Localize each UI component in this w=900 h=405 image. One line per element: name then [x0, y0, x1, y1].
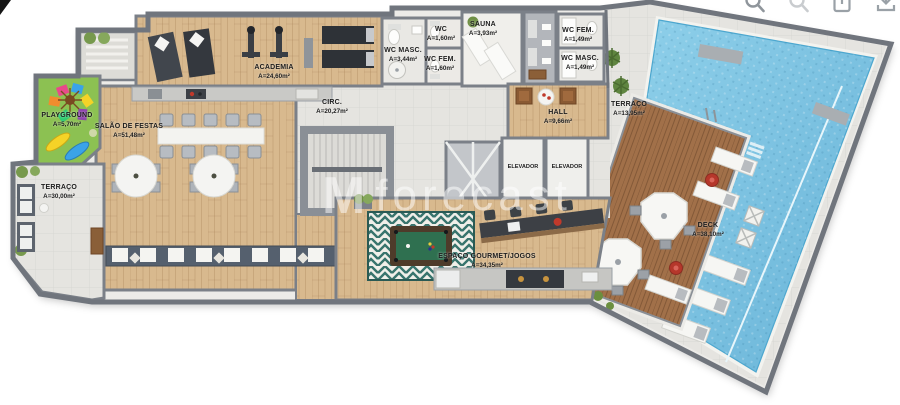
wc-masc-2-room: [558, 48, 604, 82]
elevator-1: [502, 138, 544, 198]
zoom-out-icon[interactable]: [786, 0, 810, 14]
wing-partition-wall: [606, 10, 608, 88]
sauna-room: [462, 12, 522, 86]
playground-area: [36, 76, 100, 168]
elevator-2: [546, 138, 588, 198]
gym-bench: [304, 38, 313, 68]
hall-room: [508, 84, 608, 138]
wc-room: [426, 18, 462, 48]
gym: [136, 16, 382, 86]
wc-fem-2-room: [558, 14, 604, 48]
party-kitchen-counter: [132, 87, 332, 101]
zoom-in-icon[interactable]: [742, 0, 766, 14]
changing-room: [524, 12, 556, 88]
export-icon[interactable]: [830, 0, 854, 14]
play-ball: [89, 129, 97, 137]
entry-walkway: [80, 32, 136, 80]
sofa-bench: [106, 246, 342, 266]
pool-table: [390, 226, 452, 266]
floorplan-viewer: M forecast PLAYGROUNDA=5,70m² TERRAÇOA=3…: [0, 0, 900, 405]
floorplan-canvas[interactable]: [0, 0, 900, 405]
wood-chest: [91, 228, 103, 254]
viewer-toolbar: [742, 0, 898, 14]
gourmet-kitchen: [434, 268, 612, 290]
download-icon[interactable]: [874, 0, 898, 14]
wc-masc-room: [382, 18, 426, 84]
gourmet-room: [336, 194, 612, 300]
wc-fem-room: [426, 48, 462, 84]
